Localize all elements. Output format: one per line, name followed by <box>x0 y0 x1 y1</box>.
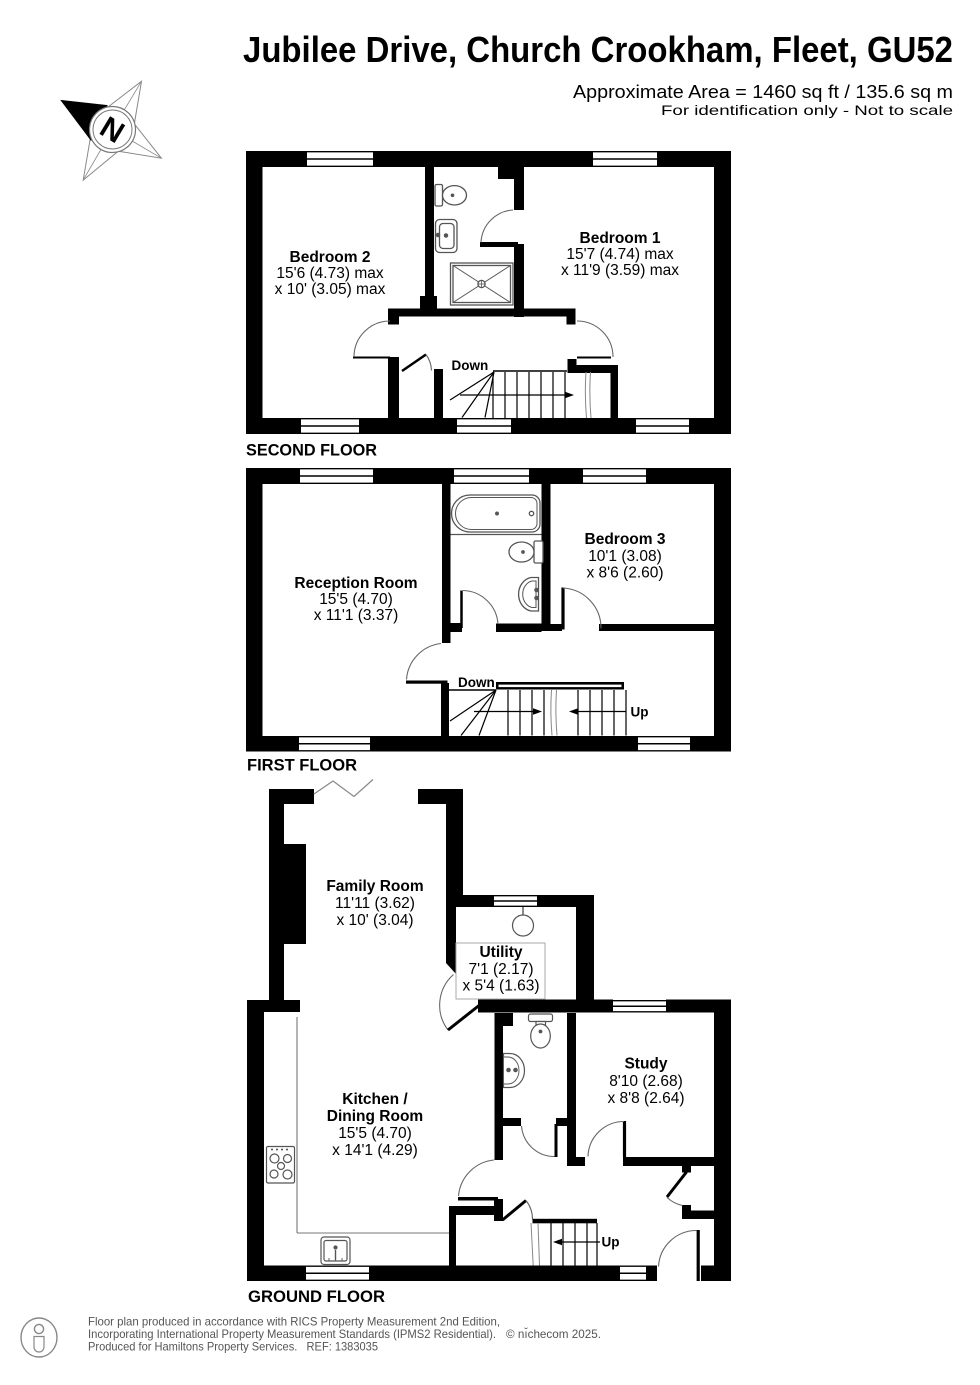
svg-text:Dining Room: Dining Room <box>327 1108 423 1125</box>
svg-text:Kitchen /: Kitchen / <box>342 1091 408 1108</box>
svg-text:Family Room: Family Room <box>326 878 423 895</box>
svg-text:x 5'4 (1.63): x 5'4 (1.63) <box>462 978 539 995</box>
svg-text:15'5 (4.70): 15'5 (4.70) <box>319 591 393 608</box>
svg-text:Study: Study <box>624 1056 667 1073</box>
svg-text:Up: Up <box>602 1235 620 1250</box>
svg-text:x 10' (3.04): x 10' (3.04) <box>336 912 413 929</box>
svg-text:15'6 (4.73) max: 15'6 (4.73) max <box>276 265 383 282</box>
svg-text:Bedroom 1: Bedroom 1 <box>580 230 661 247</box>
svg-text:10'1 (3.08): 10'1 (3.08) <box>588 548 662 565</box>
svg-text:Utility: Utility <box>479 944 522 961</box>
svg-text:x 14'1 (4.29): x 14'1 (4.29) <box>332 1142 418 1159</box>
svg-text:8'10 (2.68): 8'10 (2.68) <box>609 1073 683 1090</box>
svg-text:11'11 (3.62): 11'11 (3.62) <box>335 895 415 912</box>
svg-text:SECOND FLOOR: SECOND FLOOR <box>246 441 377 460</box>
svg-text:7'1 (2.17): 7'1 (2.17) <box>469 961 534 978</box>
svg-text:Down: Down <box>458 675 495 690</box>
svg-text:Bedroom 2: Bedroom 2 <box>290 249 371 266</box>
svg-text:Produced for Hamiltons Propert: Produced for Hamiltons Property Services… <box>88 1340 378 1354</box>
svg-text:FIRST FLOOR: FIRST FLOOR <box>247 756 357 775</box>
svg-text:Down: Down <box>452 358 489 373</box>
svg-text:Jubilee Drive, Church Crookham: Jubilee Drive, Church Crookham, Fleet, G… <box>243 29 953 70</box>
svg-text:Up: Up <box>631 705 649 720</box>
svg-text:GROUND FLOOR: GROUND FLOOR <box>248 1287 385 1306</box>
svg-text:x 11'1 (3.37): x 11'1 (3.37) <box>314 607 399 624</box>
svg-text:x 8'8 (2.64): x 8'8 (2.64) <box>607 1090 684 1107</box>
svg-text:For identification only - Not: For identification only - Not to scale <box>661 102 953 118</box>
svg-text:Bedroom 3: Bedroom 3 <box>585 531 666 548</box>
svg-text:x 10' (3.05) max: x 10' (3.05) max <box>275 281 386 298</box>
svg-text:x 11'9 (3.59) max: x 11'9 (3.59) max <box>561 262 679 279</box>
svg-text:Reception Room: Reception Room <box>294 575 417 592</box>
svg-text:15'5 (4.70): 15'5 (4.70) <box>338 1125 412 1142</box>
svg-text:15'7 (4.74) max: 15'7 (4.74) max <box>566 246 673 263</box>
svg-text:Approximate Area = 1460 sq ft: Approximate Area = 1460 sq ft / 135.6 sq… <box>573 81 953 102</box>
svg-text:© nı̆checom 2025.: © nı̆checom 2025. <box>506 1326 601 1341</box>
svg-text:x 8'6 (2.60): x 8'6 (2.60) <box>586 565 663 582</box>
